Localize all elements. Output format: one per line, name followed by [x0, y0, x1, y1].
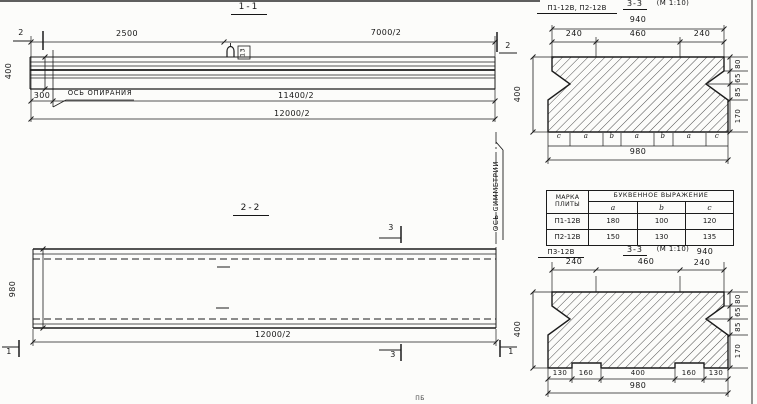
cs1-letter-c2: c [707, 133, 727, 141]
cs2-dim-940: 940 [689, 248, 721, 257]
table-cell-p2-c: 135 [686, 230, 734, 246]
cs1-letter-a3: a [679, 133, 699, 141]
dim-980-left: 980 [9, 275, 19, 303]
cs2-dim-130-right: 130 [700, 370, 732, 378]
dim-7000-2: 7000/2 [360, 29, 412, 38]
symmetry-axis-label: ОСЬ СИММЕТРИИ [493, 149, 503, 243]
cs1-letter-b1: b [602, 133, 622, 141]
cs1-dim-400: 400 [514, 80, 524, 108]
cs2-dim-160-left: 160 [570, 370, 602, 378]
cs2-dim-400-bottom: 400 [622, 370, 654, 378]
cut-mark-1-right: 1 [505, 348, 517, 357]
cs2-dim-240-right: 240 [686, 259, 718, 268]
cs1-letter-a2: a [627, 133, 647, 141]
plate-letter-table: МАРКА ПЛИТЫ БУКВЕННОЕ ВЫРАЖЕНИЕ a b c П1… [546, 190, 734, 246]
table-subheader-a: a [589, 202, 638, 214]
cs1-dim-170: 170 [735, 104, 745, 128]
cs2-dim-400: 400 [514, 315, 524, 343]
support-axis-label: ОСЬ ОПИРАНИЯ [64, 90, 136, 97]
cs2-dim-240-left: 240 [558, 258, 590, 267]
cs2-dim-460: 460 [630, 258, 662, 267]
cut-mark-3-bottom: 3 [387, 351, 399, 360]
cs1-dim-460: 460 [622, 30, 654, 39]
table-cell-p2-a: 150 [589, 230, 638, 246]
table-cell-mark-p1: П1-12В [547, 214, 589, 230]
lifting-loop-mark: 13 [240, 47, 249, 59]
cut-mark-1-left: 1 [3, 348, 15, 357]
table-subheader-c: c [686, 202, 734, 214]
table-subheader-b: b [638, 202, 686, 214]
cs1-dim-940: 940 [622, 16, 654, 25]
table-row-p2: П2-12В 150 130 135 [547, 230, 734, 246]
cut-mark-2-right: 2 [501, 42, 515, 51]
dim-11400-2: 11400/2 [268, 92, 324, 101]
table-cell-p1-c: 120 [686, 214, 734, 230]
section-2-2-title: 2-2 [233, 204, 269, 216]
cs1-letter-a1: a [576, 133, 596, 141]
cs1-dim-980: 980 [622, 148, 654, 157]
cut-mark-3-top: 3 [385, 224, 397, 233]
drawing-canvas: 1-1 2 2 2500 7000/2 400 300 ОСЬ ОПИРАНИЯ… [0, 0, 757, 404]
table-cell-p2-b: 130 [638, 230, 686, 246]
table-row-p1: П1-12В 180 100 120 [547, 214, 734, 230]
cs1-dim-240-left: 240 [558, 30, 590, 39]
cs1-dim-85: 85 [735, 80, 745, 104]
table-header-plate-mark: МАРКА ПЛИТЫ [547, 191, 589, 214]
table-cell-p1-b: 100 [638, 214, 686, 230]
cs1-letter-b2: b [653, 133, 673, 141]
dim-300: 300 [30, 92, 54, 101]
cut-mark-2-left: 2 [14, 29, 28, 38]
cs2-dim-170: 170 [735, 339, 745, 363]
cs1-dim-240-right: 240 [686, 30, 718, 39]
cs1-letter-c1: c [549, 133, 569, 141]
dim-12000-2-top: 12000/2 [263, 110, 321, 119]
partial-bottom-text: ПБ [408, 396, 432, 403]
dim-400-left: 400 [5, 57, 15, 85]
cs2-dim-980: 980 [622, 382, 654, 391]
cs2-title: 3-3 [623, 246, 647, 256]
table-cell-p1-a: 180 [589, 214, 638, 230]
table-cell-mark-p2: П2-12В [547, 230, 589, 246]
cs1-plate-marks-label: П1-12В, П2-12В [537, 5, 617, 14]
dim-12000-2-plan: 12000/2 [245, 331, 301, 340]
dim-2500: 2500 [104, 30, 150, 39]
section-1-1-title: 1-1 [231, 3, 267, 15]
table-header-letter-expression: БУКВЕННОЕ ВЫРАЖЕНИЕ [589, 191, 734, 202]
cs1-title: 3-3 [623, 0, 647, 10]
cs1-scale: (М 1:10) [650, 0, 696, 8]
cs2-dim-85: 85 [735, 315, 745, 339]
